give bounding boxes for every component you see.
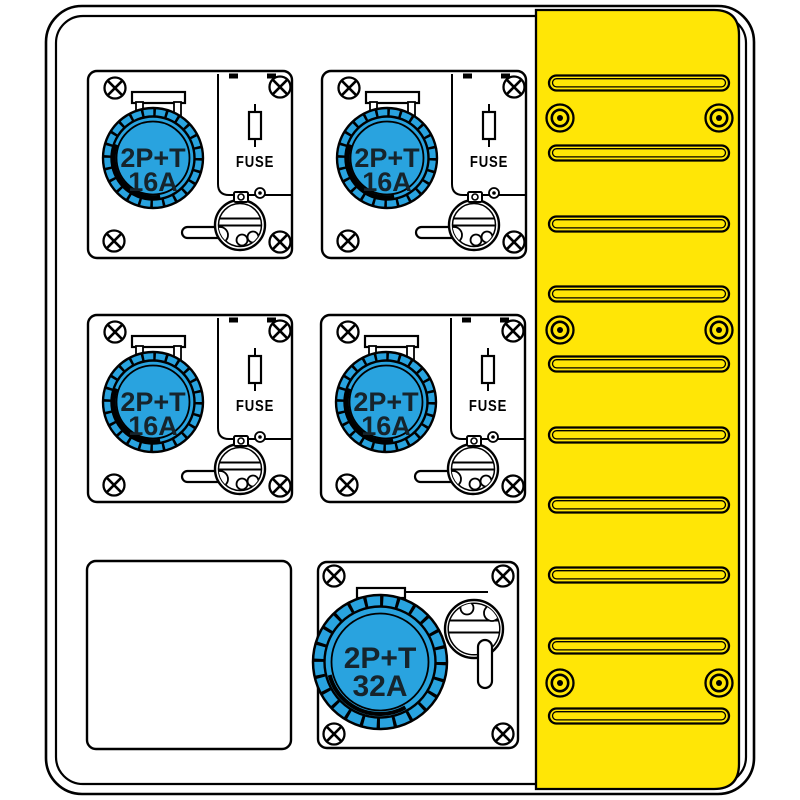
corner-screw [493,566,514,587]
corner-screw [324,566,345,587]
board-drawing: FUSE [0,0,800,800]
socket-label-line2: 32A [352,670,407,703]
vent-screw [706,317,733,344]
corner-screw [324,724,345,745]
socket-module-16a-2 [322,71,526,258]
distribution-board-diagram: FUSE [0,0,800,800]
vent-panel [536,10,739,789]
corner-screw [493,724,514,745]
vent-screw [706,105,733,132]
cee-socket-32a: 2P+T 32A [313,595,447,729]
vent-screw [547,317,574,344]
interlock-handle [478,640,492,688]
vent-screw [547,670,574,697]
blank-module-plate [87,561,291,749]
socket-module-16a-3 [88,315,292,502]
vent-screw [547,105,574,132]
socket-module-16a-4 [321,315,525,502]
socket-module-32a: 2P+T 32A [313,562,518,748]
socket-module-16a-1 [88,71,292,258]
vent-screw [706,670,733,697]
